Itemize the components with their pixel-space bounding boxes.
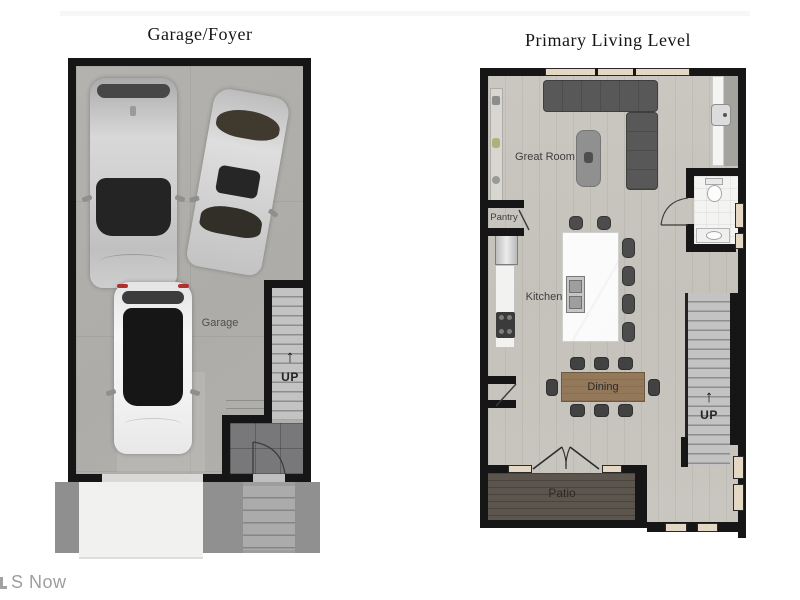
island-sink-basin (569, 296, 582, 309)
dining-chair (594, 357, 609, 370)
car-rear-glass (97, 84, 170, 98)
wall-hall-stub (488, 376, 516, 384)
window (733, 456, 744, 479)
refrigerator (495, 234, 518, 265)
right-plan: Great Room Pantry Kitchen Dining Patio ↑… (400, 0, 800, 600)
pantry-label: Pantry (485, 212, 523, 223)
car-mirror (189, 195, 200, 202)
bar-stool (622, 322, 635, 342)
great-room-label: Great Room (503, 151, 587, 163)
car-rear-window (214, 106, 282, 145)
wall-stair-stub (681, 437, 688, 467)
garage-label: Garage (190, 317, 250, 329)
car-white-suv (114, 282, 192, 454)
bar-stool (622, 266, 635, 286)
garage-door-opening (102, 474, 203, 482)
wall (480, 68, 488, 528)
car-windshield (198, 202, 264, 240)
wall-stair-left (264, 280, 272, 423)
shelf-decor (492, 96, 500, 105)
wall (303, 58, 311, 482)
entry-walk-pad-left (203, 482, 243, 553)
up-arrow-icon: ↑ (278, 348, 302, 365)
up-arrow-icon: ↑ (697, 388, 721, 405)
left-plan: Garage ↑ UP (0, 0, 400, 600)
window-mullion (633, 68, 636, 76)
dining-chair (570, 357, 585, 370)
sectional-sofa-right (626, 112, 658, 190)
sectional-sofa-top (543, 80, 658, 112)
entry-walk-pad-right (295, 482, 320, 553)
wall-bathroom (686, 176, 694, 198)
up-label: UP (697, 408, 721, 422)
car-silver-suv (90, 78, 177, 288)
car-roof-glass (123, 308, 183, 406)
window-mullion (595, 68, 598, 76)
wall-patio-right (635, 465, 647, 528)
wall (68, 474, 102, 482)
utility-sink (711, 104, 731, 126)
dining-chair (546, 379, 558, 396)
dining-chair (618, 357, 633, 370)
bar-stool (622, 238, 635, 258)
car-hood-seam (100, 254, 167, 269)
wall-patio-top (480, 465, 508, 473)
car-hood-seam (124, 418, 182, 431)
window (545, 68, 690, 76)
dining-label: Dining (578, 381, 628, 393)
vanity-sink (706, 231, 722, 240)
bar-stool (597, 216, 611, 230)
window (735, 203, 744, 228)
car-sunroof (215, 165, 261, 200)
utility-sink-drain (723, 113, 727, 117)
dining-chair (648, 379, 660, 396)
car-rear-glass (122, 291, 184, 304)
wall-stair-right (730, 293, 740, 445)
foyer-tile-floor (230, 423, 303, 474)
bar-stool (622, 294, 635, 314)
wall-pantry (482, 228, 524, 236)
wall (68, 58, 76, 482)
window (508, 465, 532, 473)
bar-stool (569, 216, 583, 230)
window (733, 484, 744, 511)
car-taillight (117, 284, 128, 288)
floorplan-sheet: Garage/Foyer (0, 0, 800, 600)
window (665, 523, 687, 532)
stove-burner (499, 329, 504, 334)
wall (68, 58, 311, 66)
patio-label: Patio (540, 486, 584, 500)
shelf-decor (492, 176, 500, 184)
right-staircase (688, 293, 730, 465)
wall-garage-foyer-divider (222, 415, 230, 482)
wall-pantry (482, 200, 524, 208)
window (697, 523, 718, 532)
wall-stair-top (264, 280, 311, 288)
exterior-pillar-left (55, 482, 79, 553)
wall-bathroom (686, 244, 736, 252)
up-label: UP (278, 370, 302, 384)
toilet-tank (705, 178, 723, 185)
driveway (79, 482, 203, 559)
shelf-plant (492, 138, 500, 148)
kitchen-label: Kitchen (520, 291, 568, 303)
stove-burner (499, 315, 504, 320)
car-antenna (130, 106, 136, 116)
stove-burner (507, 315, 512, 320)
stove-burner (507, 329, 512, 334)
dining-chair (594, 404, 609, 417)
dining-chair (618, 404, 633, 417)
car-taillight (178, 284, 189, 288)
window (602, 465, 622, 473)
island-sink-basin (569, 280, 582, 293)
wall-bathroom (686, 168, 740, 176)
entry-steps (243, 486, 295, 550)
foyer-door-opening (253, 474, 285, 482)
car-windshield-glass (96, 178, 171, 236)
toilet-bowl (707, 185, 722, 202)
wall-hall-stub (488, 400, 516, 408)
window (735, 233, 744, 249)
watermark: S Now (11, 572, 67, 593)
dining-chair (570, 404, 585, 417)
watermark-cut-letter (0, 586, 7, 589)
wall-patio-bottom (483, 520, 647, 528)
wall (285, 474, 311, 482)
